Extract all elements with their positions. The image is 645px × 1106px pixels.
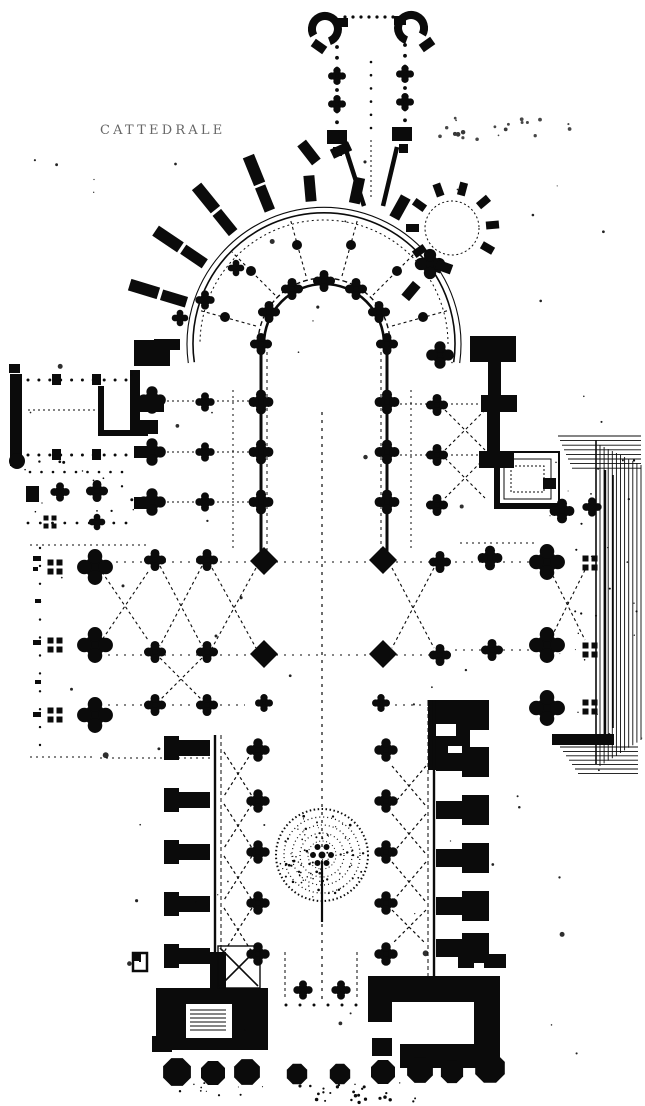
transept-end-pier <box>540 690 555 705</box>
choir-aisle-column <box>201 454 209 462</box>
transept-aisle-pier <box>429 558 438 567</box>
nave-arcade-pier <box>253 789 263 799</box>
choir-pier <box>263 397 273 407</box>
nave-arcade-pier <box>381 905 391 915</box>
nave-arcade-pier <box>260 847 270 857</box>
transept-aisle-pier <box>203 641 212 650</box>
facade-bottom-specks <box>414 1097 416 1099</box>
porch-column-cluster <box>57 647 63 653</box>
annex-scan-specks <box>133 509 134 510</box>
scan-noise-fine <box>131 374 133 376</box>
nave-first-bay-pier <box>377 705 384 712</box>
nave-arcade-pier <box>374 898 384 908</box>
ambulatory-blob-small <box>233 260 240 267</box>
hemicycle-pier <box>294 285 303 294</box>
south-choir-buttress-chain <box>488 361 501 397</box>
labyrinth-stipple <box>312 852 314 854</box>
nave-arcade-pier <box>246 796 256 806</box>
nave-south-buttress-head <box>462 747 489 777</box>
labyrinth-stipple <box>319 832 321 834</box>
facade-bottom-specks <box>357 1094 360 1097</box>
terrace-specks <box>590 493 592 495</box>
facade-bottom-specks <box>385 1092 387 1094</box>
nave-first-bay-pier <box>377 694 384 701</box>
hemicycle-pier <box>263 340 272 349</box>
nave-arcade-pier <box>253 840 263 850</box>
south-choir-corner-pier <box>443 349 454 360</box>
porch-column-cluster <box>48 647 54 653</box>
axial-chapel-pier <box>407 70 414 77</box>
nave-arcade-pier <box>260 898 270 908</box>
transept-west-dots <box>39 690 41 692</box>
annex-south-pier <box>56 494 64 502</box>
labyrinth-rosette-petal <box>315 844 321 850</box>
round-chapel-pier <box>480 241 495 254</box>
scan-noise-fine <box>597 468 599 470</box>
crossing-pier <box>369 640 397 668</box>
annex-south-dots2 <box>125 522 128 525</box>
choir-pier <box>256 404 266 414</box>
axial-chapel-center-dots <box>370 61 373 64</box>
labyrinth-stipple <box>328 836 329 837</box>
labyrinth-stipple <box>343 886 344 887</box>
nave-arcade-pier <box>374 949 384 959</box>
nave-arcade-pier <box>388 745 398 755</box>
choir-pier <box>256 390 266 400</box>
annex-west-wall <box>10 374 22 466</box>
choir-outer-wall-pier <box>146 386 157 397</box>
facade-bottom-specks2 <box>179 1090 181 1092</box>
radiating-buttress <box>255 184 275 212</box>
hemicycle-pier <box>345 285 354 294</box>
transept-aisle-pier <box>151 654 160 663</box>
porch-column-cluster <box>592 709 598 715</box>
faded-caption-right-specks2 <box>504 128 508 132</box>
portal-dots <box>313 1004 316 1007</box>
nave-north-buttress-head <box>164 736 179 760</box>
annex-south-dots1 <box>98 471 101 474</box>
round-chapel-pier <box>406 224 419 232</box>
facade-pier <box>163 1058 191 1086</box>
south-choir-aisle-pier <box>433 507 442 516</box>
south-choir-aisle-pier <box>439 451 448 460</box>
choir-pier <box>382 404 392 414</box>
axial-chapel-pier <box>401 65 408 72</box>
radiating-buttress <box>303 175 316 202</box>
scan-noise-fine <box>602 230 605 233</box>
transept-end-pier <box>98 560 113 575</box>
ambulatory-blob-small <box>177 310 184 317</box>
axial-chapel-center-dots <box>370 74 373 77</box>
hemicycle-pier <box>368 308 377 317</box>
annex-south-pier <box>50 488 58 496</box>
labyrinth-stipple <box>357 877 359 879</box>
transept-aisle-pier <box>442 558 451 567</box>
hemicycle-pier <box>352 278 361 287</box>
porch-column-cluster <box>48 638 54 644</box>
facade-bottom-specks2 <box>238 1086 239 1087</box>
turret-stub <box>336 18 348 27</box>
labyrinth-rosette-petal <box>328 852 334 858</box>
portal-dots <box>285 1004 288 1007</box>
ambulatory-blob-small <box>238 265 245 272</box>
portal-dots <box>341 1004 344 1007</box>
transept-aisle-pier <box>436 564 445 573</box>
labyrinth-stipple <box>342 824 343 825</box>
transept-end-pier <box>77 708 92 723</box>
labyrinth-stipple <box>327 859 328 860</box>
labyrinth-rosette-center <box>319 852 326 859</box>
choir-aisle-column <box>207 398 215 406</box>
nave-arcade-pier <box>381 840 391 850</box>
round-chapel-pier <box>476 195 491 209</box>
transept-aisle-pier <box>144 556 153 565</box>
nave-first-bay-pier <box>266 699 273 706</box>
south-choir-aisle-pier <box>433 444 442 453</box>
scan-noise-fine <box>557 185 558 186</box>
nave-south-buttress-stem <box>436 849 464 867</box>
facade-bottom-specks <box>309 1085 312 1088</box>
labyrinth-stipple <box>284 840 286 842</box>
facade-bottom-specks <box>378 1097 381 1100</box>
nave-south-buttress-stem <box>436 897 464 915</box>
annex-mid-dots <box>114 454 117 457</box>
axial-chapel-center-dots <box>370 114 373 117</box>
southeast-pier <box>492 553 502 563</box>
labyrinth-stipple <box>351 865 352 866</box>
terrace-specks <box>634 635 635 636</box>
transept-end-pier <box>540 565 555 580</box>
annex-room-corner-pier <box>557 499 567 509</box>
nave-south-buttress-head <box>462 843 489 873</box>
facade-bottom-specks <box>315 1098 319 1102</box>
faded-caption-right-specks <box>475 137 479 141</box>
transept-west-dots <box>39 583 41 585</box>
choir-pier <box>249 397 259 407</box>
transept-west-dots <box>39 547 41 549</box>
faded-caption-right-specks <box>520 117 524 121</box>
annex-south-pier2 <box>99 487 108 496</box>
transept-wall-ticks <box>35 680 41 684</box>
labyrinth-stipple <box>335 826 336 827</box>
annex-mid-piers <box>92 449 101 460</box>
transept-aisle-pier <box>203 562 212 571</box>
annex-north-dots <box>125 379 128 382</box>
labyrinth-stipple <box>300 872 302 874</box>
ambulatory-blob <box>201 290 209 298</box>
scan-noise-fine <box>206 520 208 522</box>
labyrinth-stipple <box>307 876 308 877</box>
axial-chapel-pier <box>328 72 335 79</box>
south-choir-buttress-chain <box>487 411 500 452</box>
annex-scan-specks <box>130 498 133 501</box>
annex-north-dots <box>70 379 73 382</box>
radiating-buttress <box>180 245 208 269</box>
crossing-pier <box>250 547 278 575</box>
scan-noise-fine <box>389 1062 390 1063</box>
transept-end-pier <box>77 560 92 575</box>
axial-chapel-top-dots <box>343 15 346 18</box>
annex-south-dots2 <box>63 522 66 525</box>
nave-first-bay-pier <box>260 694 267 701</box>
nave-north-buttress-stem <box>178 896 210 912</box>
labyrinth-stipple <box>285 876 287 878</box>
annex-room-blob <box>543 478 556 489</box>
choir-wall-buttress <box>134 497 150 509</box>
choir-aisle-column <box>201 404 209 412</box>
ambulatory-blob <box>201 302 209 310</box>
labyrinth-stipple <box>352 877 354 879</box>
labyrinth-stipple <box>304 834 305 835</box>
transept-wall-ticks <box>33 556 41 561</box>
hemicycle-pier <box>281 285 290 294</box>
labyrinth-stipple <box>298 861 299 862</box>
west-tower-south-mass <box>372 1038 392 1056</box>
labyrinth-stipple <box>332 815 334 817</box>
scan-noise-fine <box>174 163 177 166</box>
facade-bottom-specks2 <box>203 1082 205 1084</box>
faded-caption-right-specks <box>445 126 448 129</box>
labyrinth-stipple <box>303 830 304 831</box>
south-choir-buttress-chain <box>470 336 516 362</box>
annex-scan-specks <box>93 480 95 482</box>
annex-north-dots <box>114 379 117 382</box>
transept-aisle-pier <box>151 641 160 650</box>
axial-chapel-top-dots <box>391 15 394 18</box>
labyrinth-stipple <box>315 870 318 873</box>
terrace-specks <box>641 738 642 739</box>
choir-pier <box>263 497 273 507</box>
terrace-specks <box>575 649 576 650</box>
labyrinth-rosette-petal <box>324 844 330 850</box>
transept-aisle-pier <box>209 556 218 565</box>
transept-end-pier <box>77 638 92 653</box>
south-choir-buttress-chain <box>481 395 517 412</box>
faded-caption-right-specks <box>521 121 524 124</box>
scan-noise-fine <box>61 577 63 579</box>
transept-end-pier <box>550 555 565 570</box>
annex-scan-specks <box>58 460 61 463</box>
scan-noise-fine <box>558 876 560 878</box>
labyrinth-rosette-petal <box>324 860 330 866</box>
transept-aisle-pier <box>442 651 451 660</box>
porch-column-cluster <box>48 717 54 723</box>
transept-end-pier <box>98 638 113 653</box>
scan-noise-fine <box>122 584 125 587</box>
nave-north-buttress-head <box>164 892 179 916</box>
terrace-specks <box>578 633 579 634</box>
faded-caption-right-specks <box>538 118 542 122</box>
axial-chapel-pier <box>328 100 335 107</box>
ambulatory-blob-small <box>172 315 179 322</box>
labyrinth-stipple <box>301 839 303 841</box>
facade-bottom-specks <box>361 1088 363 1090</box>
scan-noise-fine <box>139 824 141 826</box>
annex-room-corner-pier <box>557 513 567 523</box>
labyrinth-stipple <box>318 827 319 828</box>
crossing-pier <box>250 640 278 668</box>
portal-trumeau-pier <box>337 992 345 1000</box>
scan-noise-fine <box>539 300 542 303</box>
labyrinth-stipple <box>349 824 352 827</box>
transept-end-pier <box>540 648 555 663</box>
scan-noise-fine <box>135 899 138 902</box>
nave-arcade-pier <box>381 854 391 864</box>
scan-noise-fine <box>567 601 569 603</box>
annex-north-dots <box>27 379 30 382</box>
transept-west-dots <box>39 726 41 728</box>
annex-wall-blob <box>9 453 25 469</box>
south-choir-aisle-pier <box>433 457 442 466</box>
transept-west-dots <box>39 565 41 567</box>
transept-aisle-pier <box>203 549 212 558</box>
terrace-specks <box>595 615 597 617</box>
scan-noise-fine <box>34 159 36 161</box>
nave-north-buttress-stem <box>178 740 210 756</box>
south-choir-aisle-pier <box>426 451 435 460</box>
labyrinth-stipple <box>320 868 322 870</box>
nave-arcade-pier <box>246 847 256 857</box>
transept-end-pier <box>529 555 544 570</box>
annex-west-wall <box>9 364 20 373</box>
labyrinth-stipple <box>304 849 306 851</box>
porch-column-cluster <box>583 643 589 649</box>
scan-noise-fine <box>55 163 58 166</box>
ambulatory-column <box>246 266 256 276</box>
labyrinth-stipple <box>334 892 336 894</box>
transept-west-dots <box>39 618 41 620</box>
scan-noise-fine <box>217 894 218 895</box>
faded-caption-right-specks2 <box>461 130 465 134</box>
terrace-edge-pier <box>594 503 602 511</box>
hemicycle-pier <box>389 340 398 349</box>
axial-chapel-center-dots <box>370 100 373 103</box>
nave-south-buttress-head <box>462 891 489 921</box>
choir-aisle-column <box>201 492 209 500</box>
nave-arcade-pier <box>260 745 270 755</box>
facade-bottom-specks <box>322 1088 324 1090</box>
labyrinth-stipple <box>310 877 311 878</box>
facade-bottom-specks2 <box>218 1094 220 1096</box>
nave-north-buttress-head <box>164 788 179 812</box>
facade-bottom-specks2 <box>200 1090 202 1092</box>
faded-caption-right-specks <box>534 134 537 137</box>
facade-bottom-specks <box>338 1084 340 1086</box>
annex-scan-specks <box>62 461 65 464</box>
southeast-pier2 <box>488 652 497 661</box>
scan-noise-fine <box>93 179 94 180</box>
scan-noise-fine <box>312 320 313 321</box>
transept-west-dots <box>39 601 41 603</box>
annex-south-dots1 <box>52 471 55 474</box>
nave-north-buttress-stem <box>178 792 210 808</box>
scan-noise-coarse <box>176 424 180 428</box>
transept-end-pier <box>88 718 103 733</box>
transept-wall-ticks <box>33 640 41 645</box>
labyrinth-stipple <box>288 864 291 867</box>
labyrinth-stipple <box>285 863 288 866</box>
axial-chapel-wall-dots-right <box>403 86 407 90</box>
annex-mid-dots <box>70 454 73 457</box>
labyrinth-stipple <box>315 836 317 838</box>
choir-pier <box>263 447 273 457</box>
annex-cluster-pier <box>52 516 57 521</box>
round-chapel-pier <box>412 198 427 212</box>
transept-aisle-pier <box>151 562 160 571</box>
annex-south-dots2 <box>39 522 42 525</box>
axial-chapel-wall-dots-left <box>335 56 339 60</box>
labyrinth-stipple <box>282 868 283 869</box>
terrace-edge-pier <box>582 503 590 511</box>
transept-end-pier <box>550 638 565 653</box>
portal-dots <box>299 1004 302 1007</box>
floor-plan-drawing <box>0 0 645 1106</box>
transept-end-pier <box>88 549 103 564</box>
facade-bottom-specks <box>383 1095 387 1099</box>
axial-chapel-top-dots <box>367 15 370 18</box>
axial-chapel-top-dots <box>351 15 354 18</box>
facade-pier <box>441 1061 463 1083</box>
faded-caption-right-specks <box>438 134 442 138</box>
nave-south-buttress-head <box>462 795 489 825</box>
transept-west-dots <box>39 744 41 746</box>
choir-pier <box>382 504 392 514</box>
annex-cluster-pier <box>44 516 49 521</box>
scan-noise-fine <box>318 872 321 875</box>
round-chapel-pier <box>457 182 468 197</box>
transept-west-dots <box>39 636 41 638</box>
round-chapel-pier <box>486 220 500 229</box>
nave-arcade-pier <box>388 898 398 908</box>
labyrinth-stipple <box>345 837 346 838</box>
porch-column-cluster <box>592 700 598 706</box>
porch-column-cluster <box>583 565 589 571</box>
nave-south-buttress-stem <box>436 706 464 724</box>
transept-aisle-pier <box>196 556 205 565</box>
labyrinth-stipple <box>299 875 301 877</box>
annex-south-pier3 <box>94 514 101 521</box>
nave-arcade-pier <box>260 796 270 806</box>
chapel-junction-pier <box>424 267 436 279</box>
faded-caption-right-specks <box>455 119 457 121</box>
hemicycle-pier <box>383 333 392 342</box>
portal-trumeau-pier <box>293 986 301 994</box>
faded-caption-right-specks <box>526 121 529 124</box>
scan-noise-fine <box>457 189 459 191</box>
southeast-pier <box>485 546 495 556</box>
scan-noise-fine <box>518 806 521 809</box>
hemicycle-pier <box>265 314 274 323</box>
choir-aisle-column <box>201 504 209 512</box>
annex-south-dots1 <box>63 471 66 474</box>
axial-chapel-pier <box>401 104 408 111</box>
transept-aisle-pier <box>151 707 160 716</box>
ambulatory-column <box>418 312 428 322</box>
terrace-specks <box>608 733 610 735</box>
nave-first-bay-pier <box>255 699 262 706</box>
facade-bottom-specks <box>363 1085 366 1088</box>
labyrinth-stipple <box>303 880 304 881</box>
porch-column-cluster <box>592 565 598 571</box>
axial-chapel-pier <box>333 67 340 74</box>
nave-arcade-pier <box>381 803 391 813</box>
labyrinth-stipple <box>326 878 328 880</box>
nave-arcade-pier <box>381 752 391 762</box>
scan-noise-fine <box>227 881 229 883</box>
nave-north-buttress-head <box>164 944 179 968</box>
nave-arcade-pier <box>253 738 263 748</box>
ambulatory-column <box>292 240 302 250</box>
